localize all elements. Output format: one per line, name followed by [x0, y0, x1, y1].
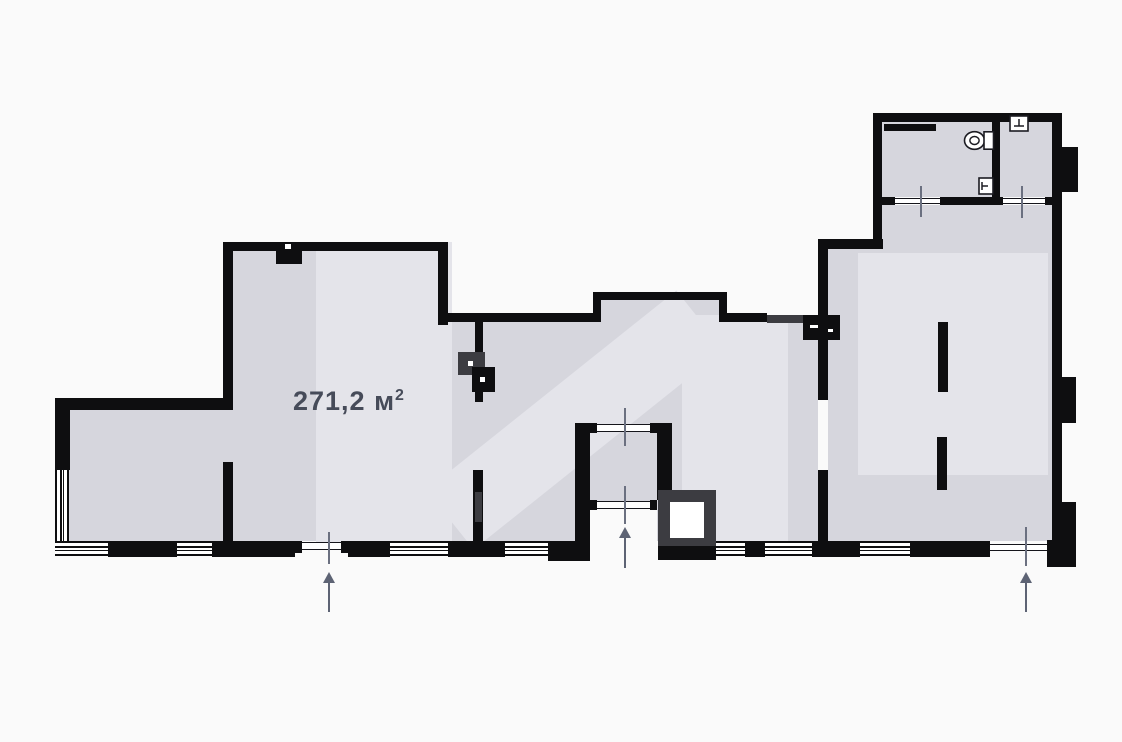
- washbasin-icon: [978, 177, 994, 195]
- wall-segment: [55, 398, 70, 470]
- window: [177, 541, 212, 556]
- interior-wall-stub-shadow: [475, 492, 482, 522]
- area-value: 271,2 м: [293, 386, 395, 416]
- wall-segment: [108, 541, 177, 557]
- wall-segment: [448, 541, 505, 557]
- floor-fill-wc: [1000, 122, 1052, 197]
- wall-segment: [212, 541, 295, 557]
- door-jamb: [590, 423, 597, 433]
- door-axis-tick: [624, 486, 626, 524]
- door-jamb: [295, 541, 302, 553]
- wall-segment: [727, 313, 767, 322]
- floor-fill-right-upper-strip: [882, 205, 1052, 249]
- wall-segment: [593, 292, 727, 300]
- door-axis-tick: [920, 186, 922, 217]
- wall-segment: [873, 113, 1062, 122]
- door-jamb: [590, 500, 597, 510]
- wall-segment: [575, 423, 590, 557]
- wall-segment-shadow: [767, 315, 803, 323]
- wall-segment: [55, 398, 233, 410]
- wall-segment: [548, 541, 590, 561]
- sink-icon: [1009, 115, 1029, 132]
- interior-wall: [475, 322, 483, 355]
- area-superscript: 2: [395, 387, 405, 404]
- wall-segment: [448, 313, 593, 322]
- wall-pilaster: [1062, 147, 1078, 192]
- door-opening: [990, 544, 1047, 551]
- wall-segment: [910, 541, 990, 557]
- wall-segment: [657, 423, 672, 500]
- watermark-logo: [858, 253, 1048, 475]
- interior-wall-stub: [818, 470, 828, 542]
- window: [860, 541, 910, 556]
- door-axis-tick: [624, 408, 626, 446]
- entrance-arrow-up-icon: [1025, 583, 1027, 612]
- wall-pilaster: [1062, 377, 1076, 423]
- area-label: 271,2 м2: [293, 386, 405, 417]
- door-opening: [895, 198, 940, 204]
- entrance-arrow-up-icon: [328, 583, 330, 612]
- window: [765, 541, 812, 556]
- wall-segment: [745, 541, 765, 557]
- wall-pier: [276, 251, 302, 264]
- wall-segment: [223, 242, 233, 410]
- pier-marker: [468, 361, 473, 366]
- pier-marker: [480, 377, 485, 382]
- wall-segment: [348, 541, 390, 557]
- entrance-arrow-up-icon: [624, 538, 626, 568]
- window: [505, 541, 548, 556]
- wall-segment: [719, 292, 727, 322]
- wall-segment: [940, 197, 1003, 205]
- wall-segment: [438, 251, 448, 325]
- wall-segment: [1052, 113, 1062, 543]
- wall-segment: [812, 541, 860, 557]
- wall-segment: [873, 113, 882, 240]
- door-jamb: [650, 500, 657, 510]
- door-axis-tick: [328, 532, 330, 564]
- window: [716, 541, 745, 556]
- window: [55, 541, 108, 556]
- floor-fill-left-extension: [68, 410, 233, 541]
- wall-segment: [882, 197, 895, 205]
- toilet-icon: [963, 129, 996, 152]
- interior-wall: [818, 249, 828, 400]
- wall-segment: [1047, 540, 1062, 567]
- door-pier: [475, 392, 483, 402]
- door-axis-tick: [1025, 527, 1027, 566]
- wall-segment: [223, 242, 448, 251]
- window: [390, 541, 448, 556]
- vent-shaft: [884, 124, 936, 131]
- door-jamb: [341, 541, 348, 553]
- shaft-void: [670, 502, 704, 538]
- wall-segment: [1045, 197, 1052, 205]
- wall-segment: [818, 239, 883, 249]
- door-jamb: [650, 423, 657, 433]
- interior-wall-stub: [938, 322, 948, 392]
- interior-wall-stub: [223, 462, 233, 542]
- shaft-square-base: [658, 546, 716, 560]
- floor-plan-canvas: 271,2 м2: [0, 0, 1122, 742]
- door-opening: [1003, 198, 1045, 204]
- wall-pilaster: [1060, 502, 1076, 567]
- wall-marker: [285, 244, 291, 249]
- interior-wall-stub: [937, 437, 947, 490]
- door-axis-tick: [1021, 186, 1023, 218]
